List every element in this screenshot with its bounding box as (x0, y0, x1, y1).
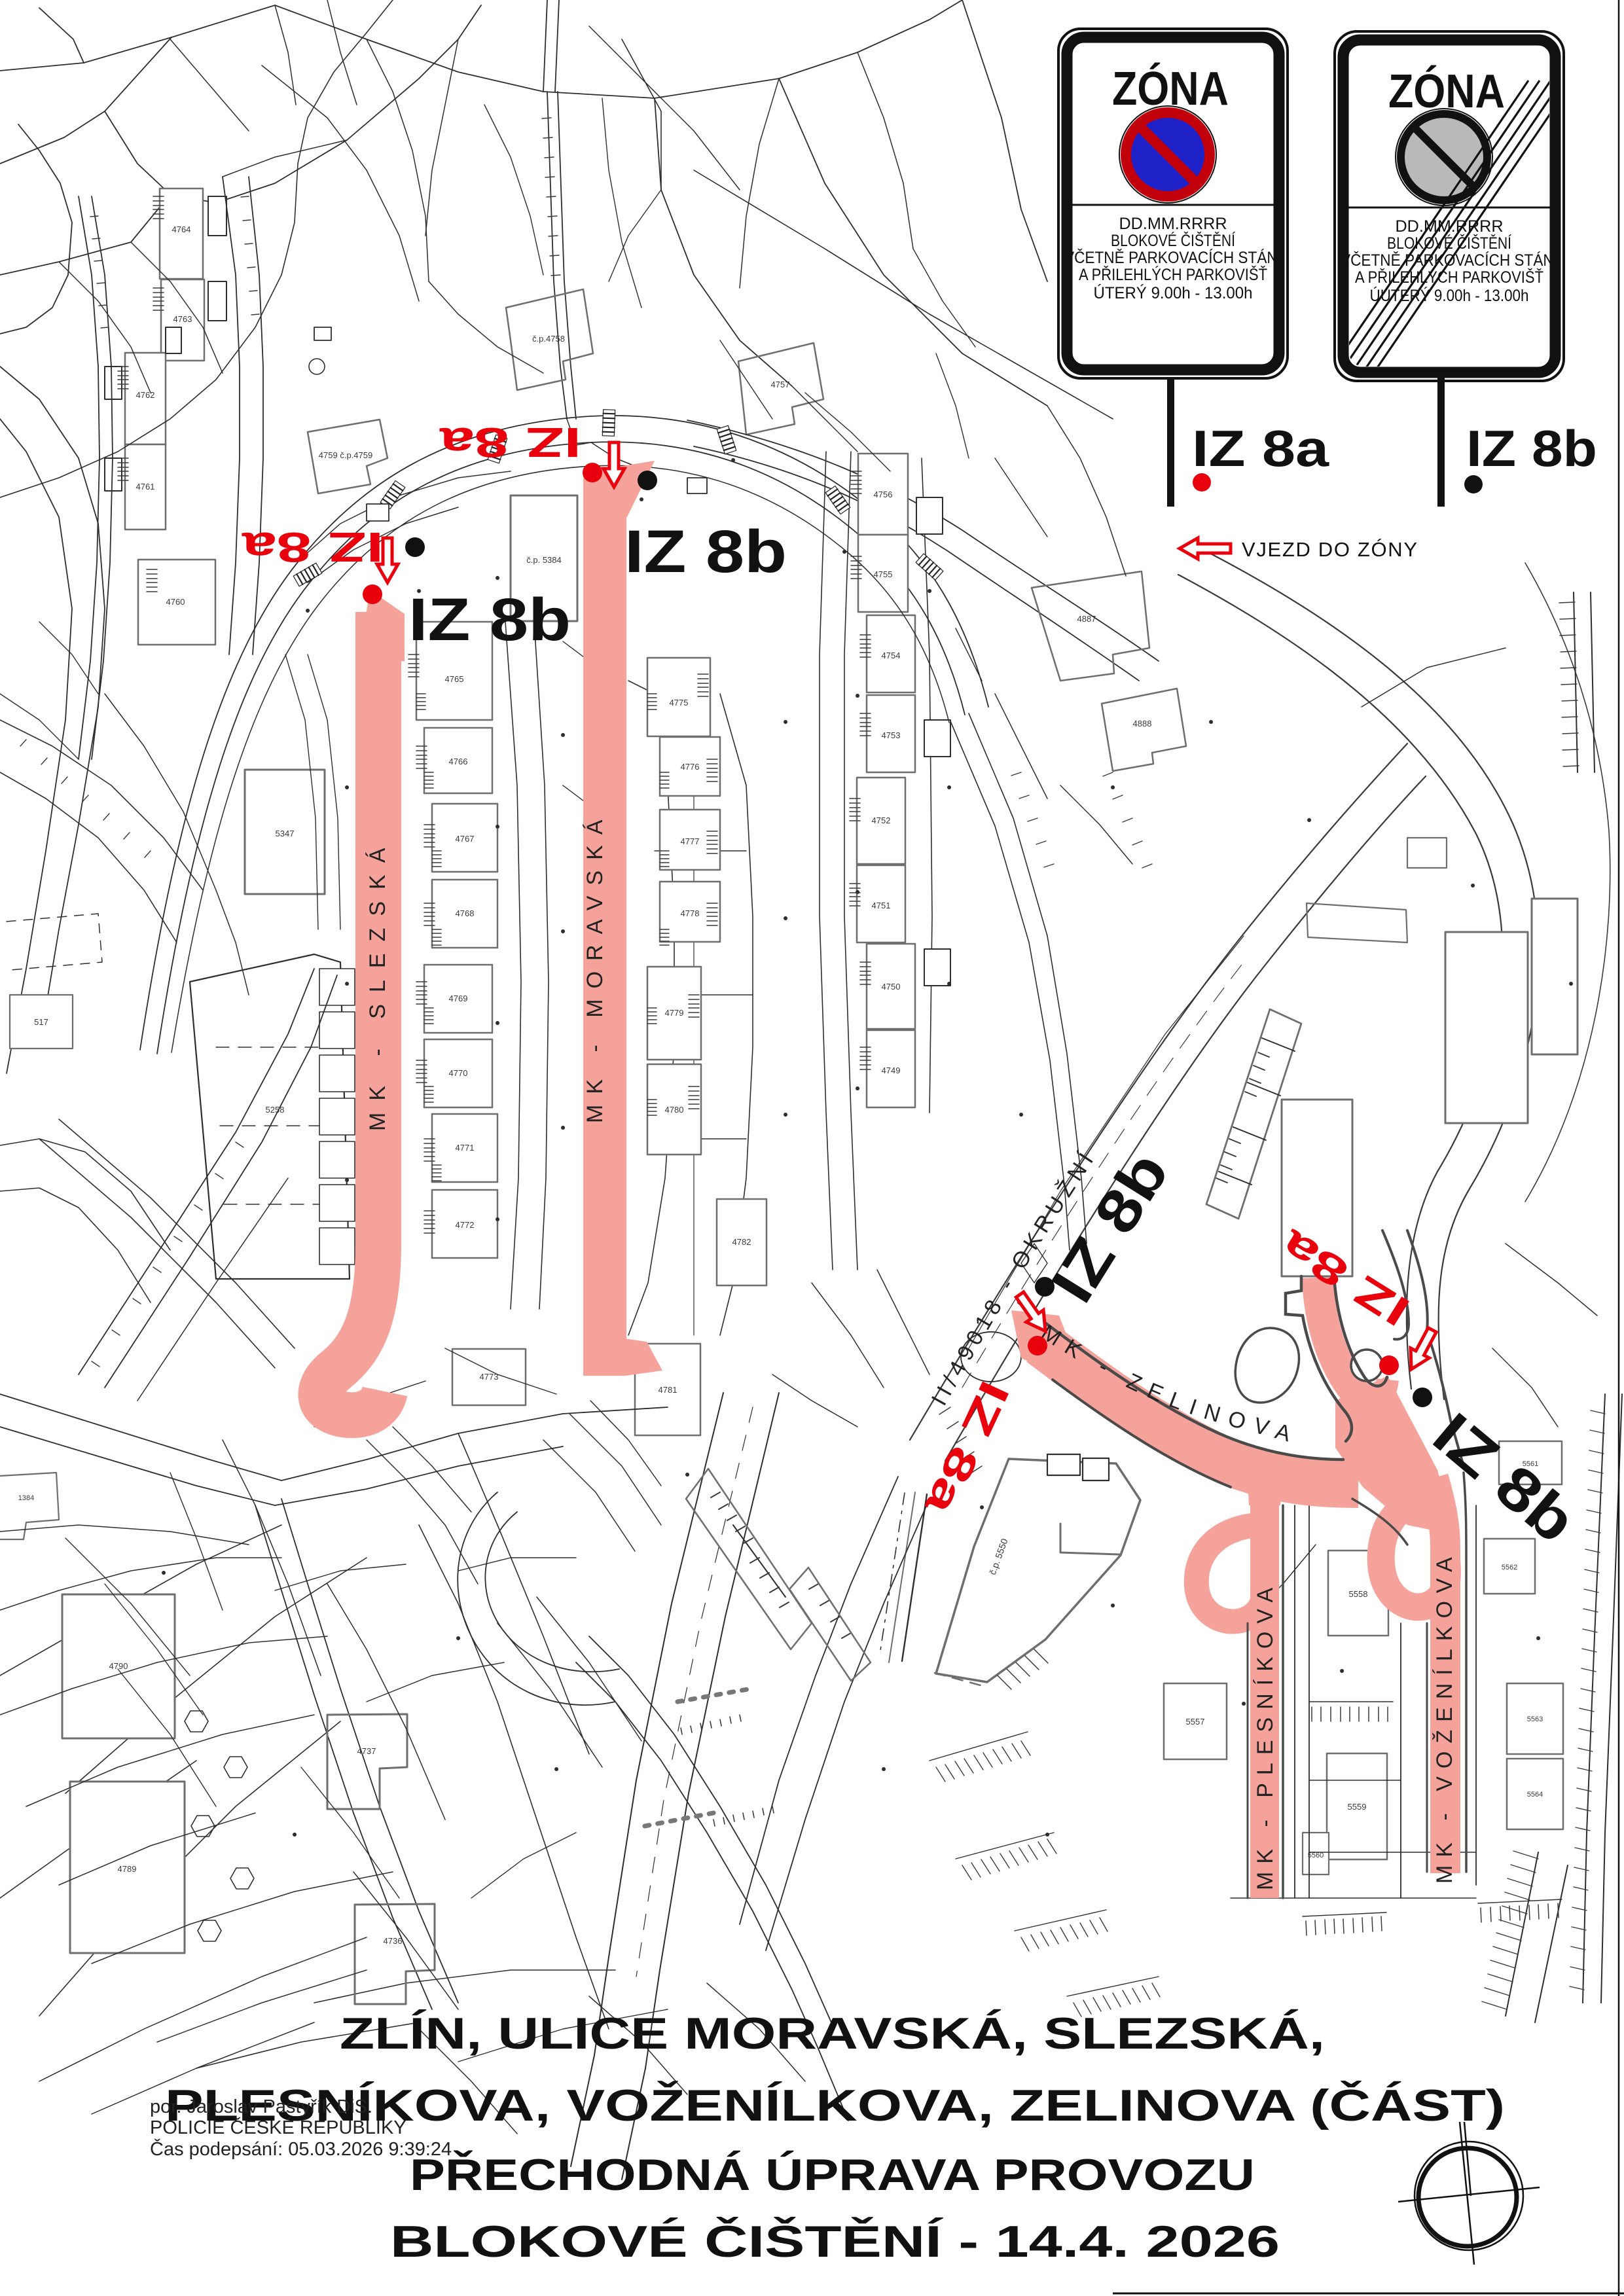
svg-text:4888: 4888 (1133, 719, 1152, 728)
svg-text:č.p. 5384: č.p. 5384 (526, 555, 562, 565)
svg-text:č.p.4758: č.p.4758 (532, 334, 565, 344)
svg-text:5557: 5557 (1186, 1717, 1205, 1727)
svg-text:IZ 8b: IZ 8b (624, 518, 787, 585)
svg-text:4752: 4752 (872, 816, 891, 825)
svg-text:4780: 4780 (665, 1105, 684, 1115)
svg-text:4753: 4753 (882, 730, 901, 740)
svg-text:IZ 8b: IZ 8b (1466, 420, 1597, 477)
svg-text:BLOKOVÉ ČIŠTĚNÍ: BLOKOVÉ ČIŠTĚNÍ (1387, 234, 1511, 253)
svg-text:4789: 4789 (118, 1864, 137, 1874)
svg-text:4754: 4754 (882, 651, 901, 660)
svg-text:4765: 4765 (445, 674, 464, 684)
svg-text:4762: 4762 (136, 390, 155, 400)
svg-text:4769: 4769 (449, 994, 468, 1003)
svg-text:4779: 4779 (665, 1008, 684, 1018)
svg-text:4770: 4770 (449, 1068, 468, 1078)
svg-text:517: 517 (34, 1017, 48, 1027)
svg-text:5347: 5347 (276, 829, 295, 838)
svg-text:5562: 5562 (1502, 1564, 1517, 1571)
svg-text:A PŘILEHLÝCH PARKOVIŠŤ: A PŘILEHLÝCH PARKOVIŠŤ (1079, 265, 1267, 284)
svg-text:4887: 4887 (1077, 614, 1096, 624)
svg-text:VJEZD DO ZÓNY: VJEZD DO ZÓNY (1242, 538, 1417, 561)
svg-text:4763: 4763 (173, 314, 192, 324)
svg-text:4767: 4767 (456, 834, 475, 844)
svg-text:4736: 4736 (384, 1936, 403, 1946)
svg-text:4760: 4760 (166, 597, 185, 607)
svg-text:IZ 8b: IZ 8b (408, 586, 571, 653)
svg-text:por. Jaroslav Pastyřík DiS.: por. Jaroslav Pastyřík DiS. (150, 2096, 372, 2117)
svg-text:4777: 4777 (681, 836, 700, 846)
svg-text:BLOKOVÉ ČIŠTĚNÍ: BLOKOVÉ ČIŠTĚNÍ (1111, 231, 1235, 250)
svg-text:4775: 4775 (670, 698, 689, 708)
svg-text:4750: 4750 (882, 982, 901, 992)
svg-text:POLICIE ČESKÉ REPUBLIKY: POLICIE ČESKÉ REPUBLIKY (150, 2116, 406, 2138)
svg-text:MK - VOŽENÍLKOVA: MK - VOŽENÍLKOVA (1432, 1549, 1457, 1884)
svg-text:ÚTERÝ 9.00h - 13.00h: ÚTERÝ 9.00h - 13.00h (1094, 283, 1253, 302)
svg-text:4756: 4756 (874, 490, 893, 499)
svg-text:5564: 5564 (1527, 1791, 1543, 1799)
svg-text:4766: 4766 (449, 757, 468, 766)
svg-text:5563: 5563 (1527, 1715, 1543, 1723)
svg-text:4768: 4768 (456, 908, 475, 918)
svg-text:ZLÍN, ULICE MORAVSKÁ, SLEZSKÁ,: ZLÍN, ULICE MORAVSKÁ, SLEZSKÁ, (340, 2009, 1325, 2058)
svg-text:MK - MORAVSKÁ: MK - MORAVSKÁ (583, 810, 607, 1124)
svg-text:VČETNĚ PARKOVACÍCH STÁNÍ: VČETNĚ PARKOVACÍCH STÁNÍ (1341, 251, 1558, 270)
svg-text:MK - PLESNÍKOVA: MK - PLESNÍKOVA (1253, 1580, 1278, 1890)
svg-text:4759 č.p.4759: 4759 č.p.4759 (319, 450, 372, 460)
svg-text:MK - SLEZSKÁ: MK - SLEZSKÁ (365, 836, 390, 1131)
svg-text:4749: 4749 (882, 1066, 901, 1075)
svg-text:5558: 5558 (1349, 1589, 1368, 1599)
svg-text:4781: 4781 (659, 1385, 677, 1395)
svg-text:4755: 4755 (874, 569, 893, 579)
svg-text:4782: 4782 (732, 1237, 751, 1247)
svg-text:1384: 1384 (18, 1494, 34, 1502)
svg-text:ZÓNA: ZÓNA (1112, 62, 1229, 115)
svg-text:IZ 8a: IZ 8a (439, 419, 581, 466)
svg-text:4771: 4771 (456, 1143, 475, 1153)
svg-text:VČETNĚ PARKOVACÍCH STÁNÍ: VČETNĚ PARKOVACÍCH STÁNÍ (1064, 248, 1282, 267)
svg-text:A PŘILEHLÝCH PARKOVIŠŤ: A PŘILEHLÝCH PARKOVIŠŤ (1355, 268, 1543, 287)
svg-text:PŘECHODNÁ ÚPRAVA PROVOZU: PŘECHODNÁ ÚPRAVA PROVOZU (410, 2149, 1255, 2200)
svg-text:4776: 4776 (681, 762, 700, 772)
svg-text:DD.MM.RRRR: DD.MM.RRRR (1396, 217, 1504, 236)
svg-text:4737: 4737 (357, 1746, 376, 1756)
svg-text:5258: 5258 (266, 1105, 285, 1115)
svg-text:4772: 4772 (456, 1220, 475, 1230)
svg-text:4764: 4764 (172, 224, 191, 234)
svg-text:5559: 5559 (1348, 1802, 1367, 1812)
svg-text:DD.MM.RRRR: DD.MM.RRRR (1119, 215, 1227, 233)
svg-text:IZ 8a: IZ 8a (1192, 420, 1329, 477)
svg-text:ZÓNA: ZÓNA (1388, 65, 1505, 118)
svg-text:4761: 4761 (136, 482, 155, 492)
svg-text:IZ 8a: IZ 8a (242, 524, 384, 571)
svg-text:BLOKOVÉ ČIŠTĚNÍ - 14.4. 2026: BLOKOVÉ ČIŠTĚNÍ - 14.4. 2026 (390, 2216, 1280, 2267)
svg-text:4778: 4778 (681, 908, 700, 918)
svg-text:Čas podepsání: 05.03.2026 9:39: Čas podepsání: 05.03.2026 9:39:24 (150, 2138, 452, 2160)
svg-text:5560: 5560 (1308, 1852, 1324, 1859)
svg-text:4751: 4751 (872, 901, 891, 910)
svg-text:4757: 4757 (771, 380, 790, 389)
